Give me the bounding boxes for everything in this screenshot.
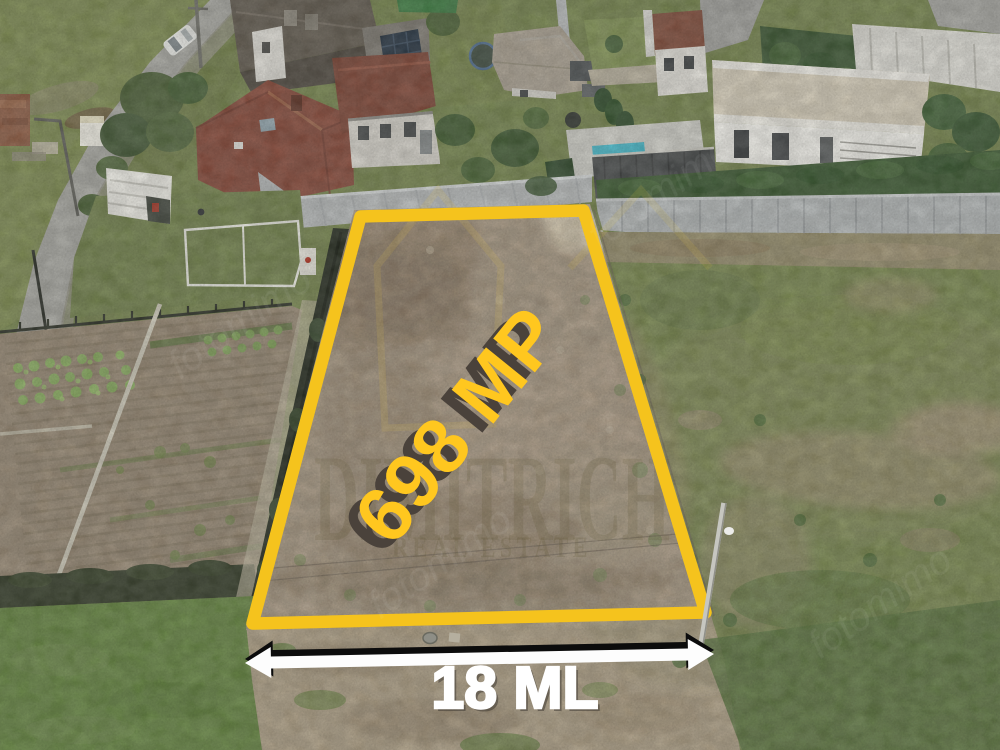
svg-text:18 ML: 18 ML <box>431 655 598 721</box>
